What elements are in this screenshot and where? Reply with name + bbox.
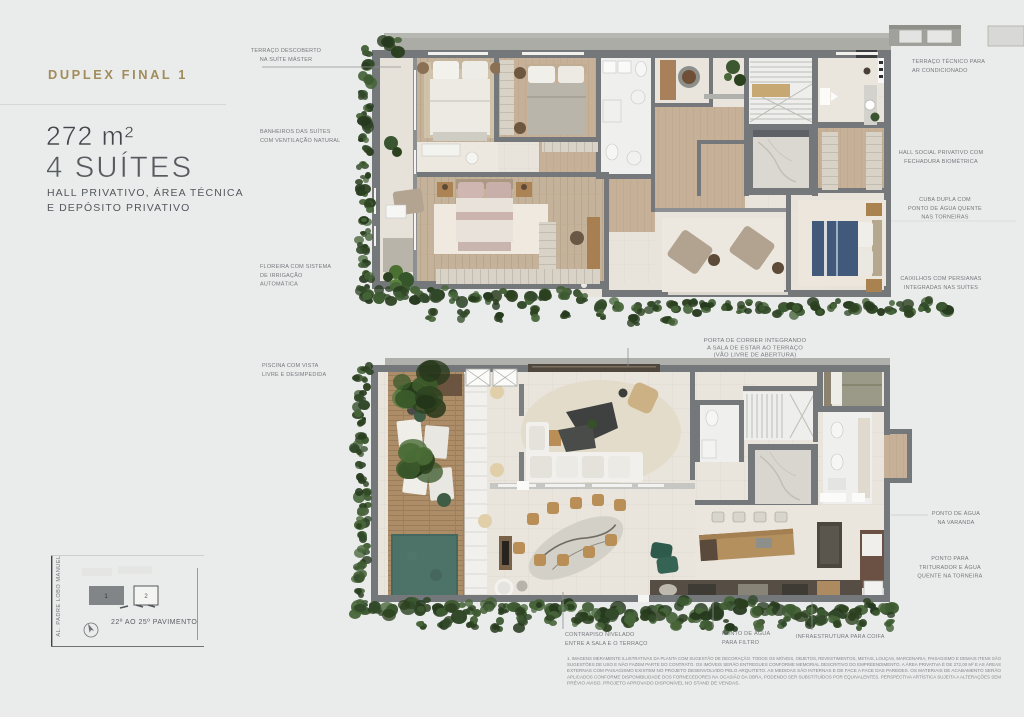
svg-text:PORTA DE CORRER INTEGRANDOA SA: PORTA DE CORRER INTEGRANDOA SALA DE ESTA…	[704, 338, 807, 359]
svg-text:DUPLEX FINAL 1: DUPLEX FINAL 1	[48, 67, 188, 82]
svg-text:4 SUÍTES: 4 SUÍTES	[46, 151, 193, 184]
svg-text:272 m²: 272 m²	[46, 121, 134, 151]
svg-text:INFRAESTRUTURA PARA COIFA: INFRAESTRUTURA PARA COIFA	[796, 634, 885, 640]
svg-text:HALL PRIVATIVO, ÁREA TÉCNICA: HALL PRIVATIVO, ÁREA TÉCNICA	[47, 186, 244, 199]
svg-text:E DEPÓSITO PRIVATIVO: E DEPÓSITO PRIVATIVO	[47, 201, 190, 214]
svg-text:AL. PADRE LOBO MANUEL: AL. PADRE LOBO MANUEL	[56, 555, 62, 636]
svg-text:22º AO 25º PAVIMENTO: 22º AO 25º PAVIMENTO	[111, 619, 197, 626]
